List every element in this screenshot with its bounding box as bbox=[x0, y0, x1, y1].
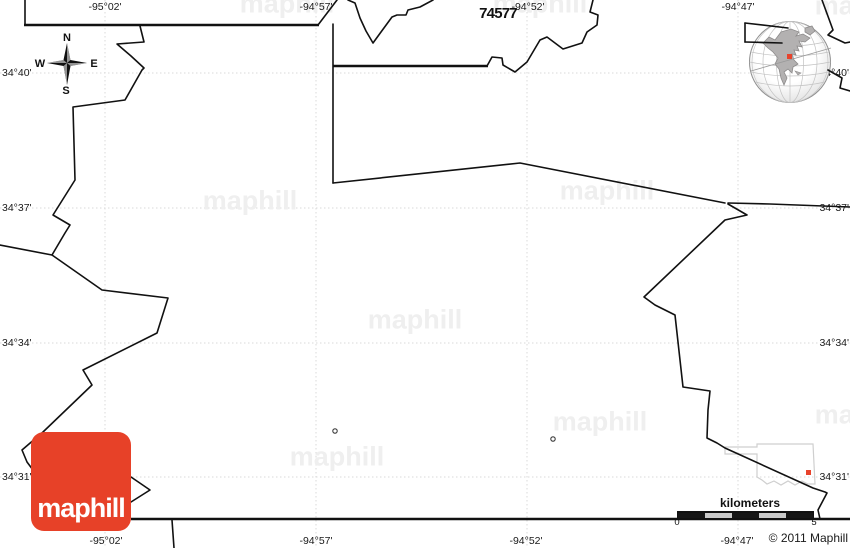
scale-bar-segment bbox=[678, 513, 705, 518]
scale-bar: kilometers 0 5 bbox=[670, 496, 830, 532]
scale-min-label: 0 bbox=[674, 517, 679, 528]
oklahoma-inset-outline bbox=[725, 444, 815, 485]
copyright-text: © 2011 Maphill bbox=[728, 531, 848, 545]
logo-text: maphill bbox=[31, 493, 131, 524]
scale-bar-segment bbox=[786, 513, 813, 518]
scale-bar-track bbox=[677, 511, 814, 519]
town-dot bbox=[551, 437, 555, 441]
scale-title: kilometers bbox=[670, 496, 830, 510]
maphill-logo[interactable]: maphill bbox=[31, 432, 131, 531]
inset-location-marker bbox=[806, 470, 811, 475]
map-canvas: maphill maphill maphill maphill maphill … bbox=[0, 0, 850, 548]
zip-boundary-thick bbox=[24, 25, 850, 519]
scale-bar-segment bbox=[759, 513, 786, 518]
scale-bar-segment bbox=[732, 513, 759, 518]
scale-bar-segment bbox=[705, 513, 732, 518]
scale-max-label: 5 bbox=[811, 517, 816, 528]
town-dot bbox=[333, 429, 337, 433]
